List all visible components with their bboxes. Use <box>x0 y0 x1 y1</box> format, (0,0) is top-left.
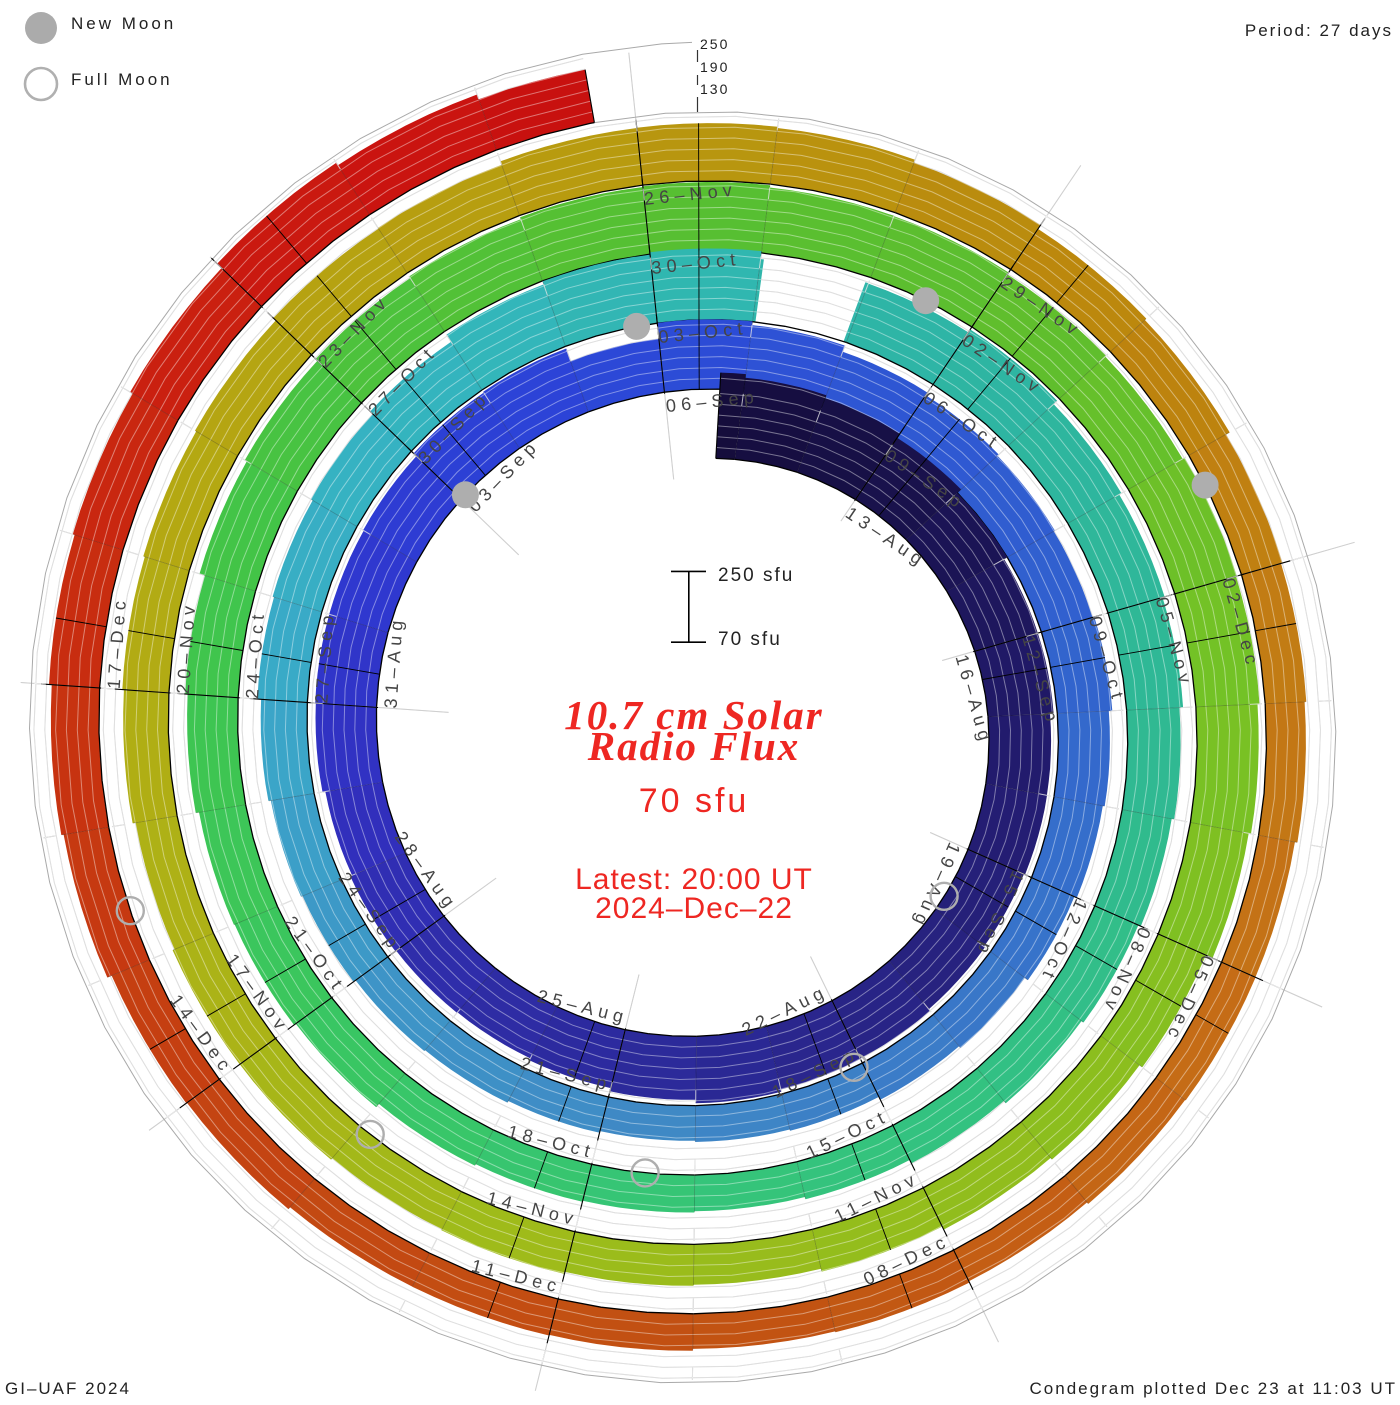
svg-text:250 sfu: 250 sfu <box>718 565 794 586</box>
svg-text:70 sfu: 70 sfu <box>639 782 750 820</box>
svg-text:Condegram plotted Dec 23 at 11: Condegram plotted Dec 23 at 11:03 UT <box>1030 1379 1397 1398</box>
svg-text:2024–Dec–22: 2024–Dec–22 <box>595 892 793 925</box>
svg-text:Period: 27 days: Period: 27 days <box>1245 21 1393 40</box>
svg-text:Full Moon: Full Moon <box>71 70 173 89</box>
svg-text:130: 130 <box>700 81 729 97</box>
svg-text:250: 250 <box>700 36 729 52</box>
svg-text:New Moon: New Moon <box>71 14 176 33</box>
svg-text:GI–UAF 2024: GI–UAF 2024 <box>5 1379 131 1398</box>
svg-text:Radio Flux: Radio Flux <box>587 723 801 769</box>
svg-text:70 sfu: 70 sfu <box>718 629 782 650</box>
svg-text:190: 190 <box>700 59 729 75</box>
